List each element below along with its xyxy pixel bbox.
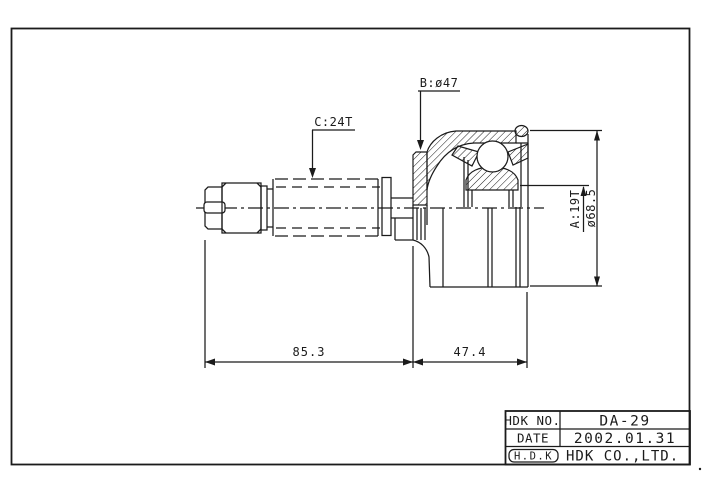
part-no-value: DA-29 (599, 414, 650, 430)
print-speck (699, 468, 701, 470)
drawing-sheet: C:24T B:ø47 A:19T ø68.5 85.3 47.4 HDK NO… (0, 0, 720, 480)
part-no-label: HDK NO. (504, 413, 560, 428)
company-name: HDK CO.,LTD. (566, 449, 679, 465)
shaft (204, 178, 413, 241)
label-boot-groove-diameter: B:ø47 (420, 76, 459, 90)
date-label: DATE (517, 431, 549, 446)
hdk-logo-text: H.D.K (514, 451, 553, 463)
arrowhead (205, 359, 215, 366)
title-block: HDK NO. DA-29 DATE 2002.01.31 H.D.K HDK … (504, 411, 690, 465)
shaft-collar (382, 178, 391, 236)
label-outer-diameter: ø68.5 (584, 189, 598, 228)
boot-groove-rim-section (413, 152, 427, 205)
cv-joint-housing (413, 126, 528, 288)
arrowhead (594, 277, 600, 287)
part-drawing (196, 126, 544, 288)
housing-lip-section (515, 126, 528, 137)
label-shaft-spline: C:24T (314, 115, 353, 129)
label-inner-spline: A:19T (568, 190, 582, 229)
arrowhead (309, 168, 316, 178)
label-shaft-length: 85.3 (293, 345, 326, 359)
arrowhead (403, 359, 413, 366)
bearing-ball (477, 141, 508, 172)
arrowhead (517, 359, 527, 366)
arrowhead (594, 131, 600, 141)
arrowhead (413, 359, 423, 366)
dimensions: C:24T B:ø47 A:19T ø68.5 85.3 47.4 (205, 76, 602, 368)
ball-track-right (508, 144, 528, 165)
ball-track-left (452, 146, 479, 166)
cv-joint-technical-drawing: C:24T B:ø47 A:19T ø68.5 85.3 47.4 HDK NO… (0, 0, 720, 480)
date-value: 2002.01.31 (574, 431, 676, 447)
bell-flare (413, 240, 430, 287)
sheet-border-frame (12, 29, 690, 465)
label-joint-length: 47.4 (454, 345, 487, 359)
arrowhead (417, 140, 424, 150)
